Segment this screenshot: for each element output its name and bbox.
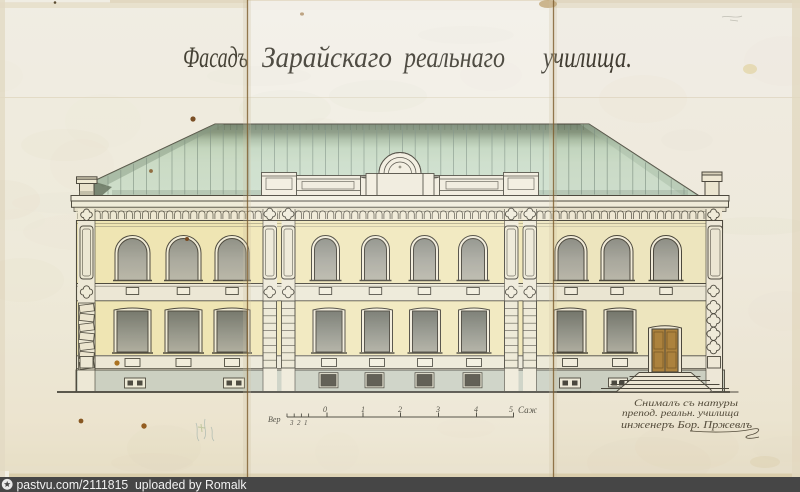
svg-text:pastvu.com/2111815 uploaded b: pastvu.com/2111815 uploaded by Romalk — [17, 478, 248, 492]
